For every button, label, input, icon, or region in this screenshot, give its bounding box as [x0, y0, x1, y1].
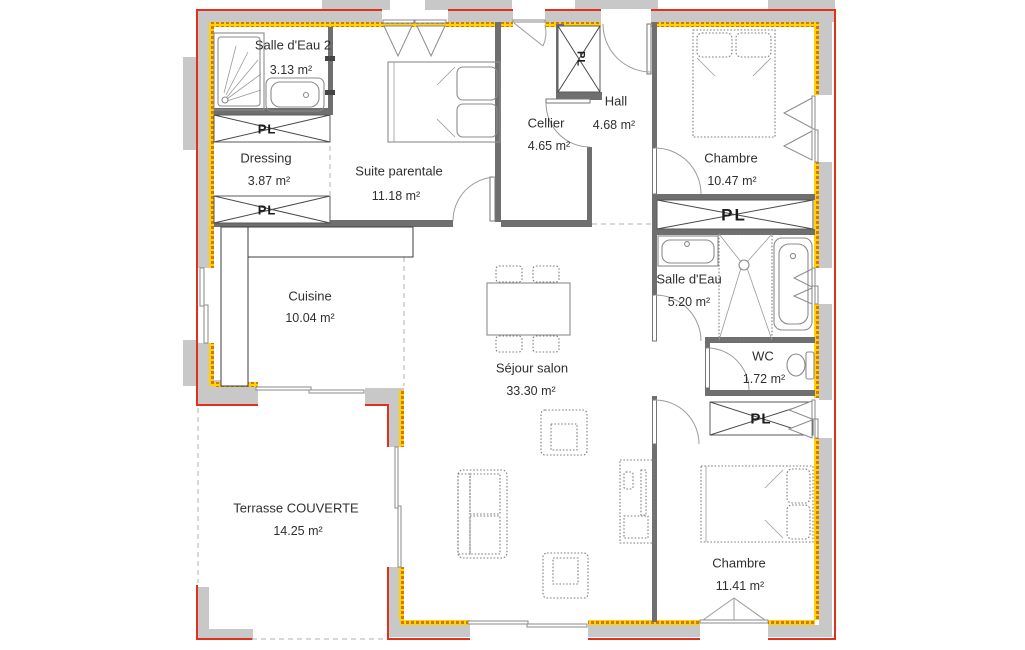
room-label-sejour-salon-area: 33.30 m²: [506, 385, 555, 398]
room-label-cellier-name: Cellier: [528, 117, 565, 130]
room-label-hall-area: 4.68 m²: [593, 119, 635, 132]
closet-label-chambre-nord: PL: [721, 207, 747, 224]
margin-fragments: [183, 0, 835, 386]
room-label-cuisine-name: Cuisine: [288, 290, 331, 303]
room-label-chambre-sud-area: 11.41 m²: [716, 580, 764, 593]
closet-label-dressing-2: PL: [258, 204, 277, 217]
room-label-sejour-salon-name: Séjour salon: [496, 362, 568, 375]
room-label-salle-deau-name: Salle d'Eau: [656, 273, 721, 286]
room-label-suite-parentale-name: Suite parentale: [355, 165, 442, 178]
room-label-suite-parentale-area: 11.18 m²: [372, 190, 420, 203]
closet-label-dressing-1: PL: [258, 123, 277, 136]
room-label-wc-name: WC: [752, 350, 774, 363]
room-label-chambre-sud-name: Chambre: [712, 557, 765, 570]
room-label-dressing-name: Dressing: [240, 152, 291, 165]
room-label-salle-deau-area: 5.20 m²: [668, 296, 710, 309]
room-label-chambre-nord-name: Chambre: [704, 152, 757, 165]
room-label-cellier-area: 4.65 m²: [528, 140, 570, 153]
room-label-cuisine-area: 10.04 m²: [285, 312, 334, 325]
exterior-walls: [198, 11, 834, 640]
room-label-salle-deau-2-name: Salle d'Eau 2: [255, 39, 331, 52]
room-label-chambre-nord-area: 10.47 m²: [707, 175, 756, 188]
closet-label-hall: PL: [575, 51, 586, 67]
room-label-salle-deau-2-area: 3.13 m²: [270, 64, 312, 77]
floor-plan: Salle d'Eau 2 3.13 m² Dressing 3.87 m² S…: [0, 0, 1025, 650]
room-label-terrasse-name: Terrasse COUVERTE: [233, 502, 358, 515]
room-label-wc-area: 1.72 m²: [743, 373, 785, 386]
floor-plan-drawing: [0, 0, 1025, 650]
room-label-dressing-area: 3.87 m²: [248, 175, 290, 188]
room-label-terrasse-area: 14.25 m²: [273, 525, 322, 538]
closet-label-chambre-sud: PL: [750, 412, 771, 427]
room-label-hall-name: Hall: [605, 95, 627, 108]
